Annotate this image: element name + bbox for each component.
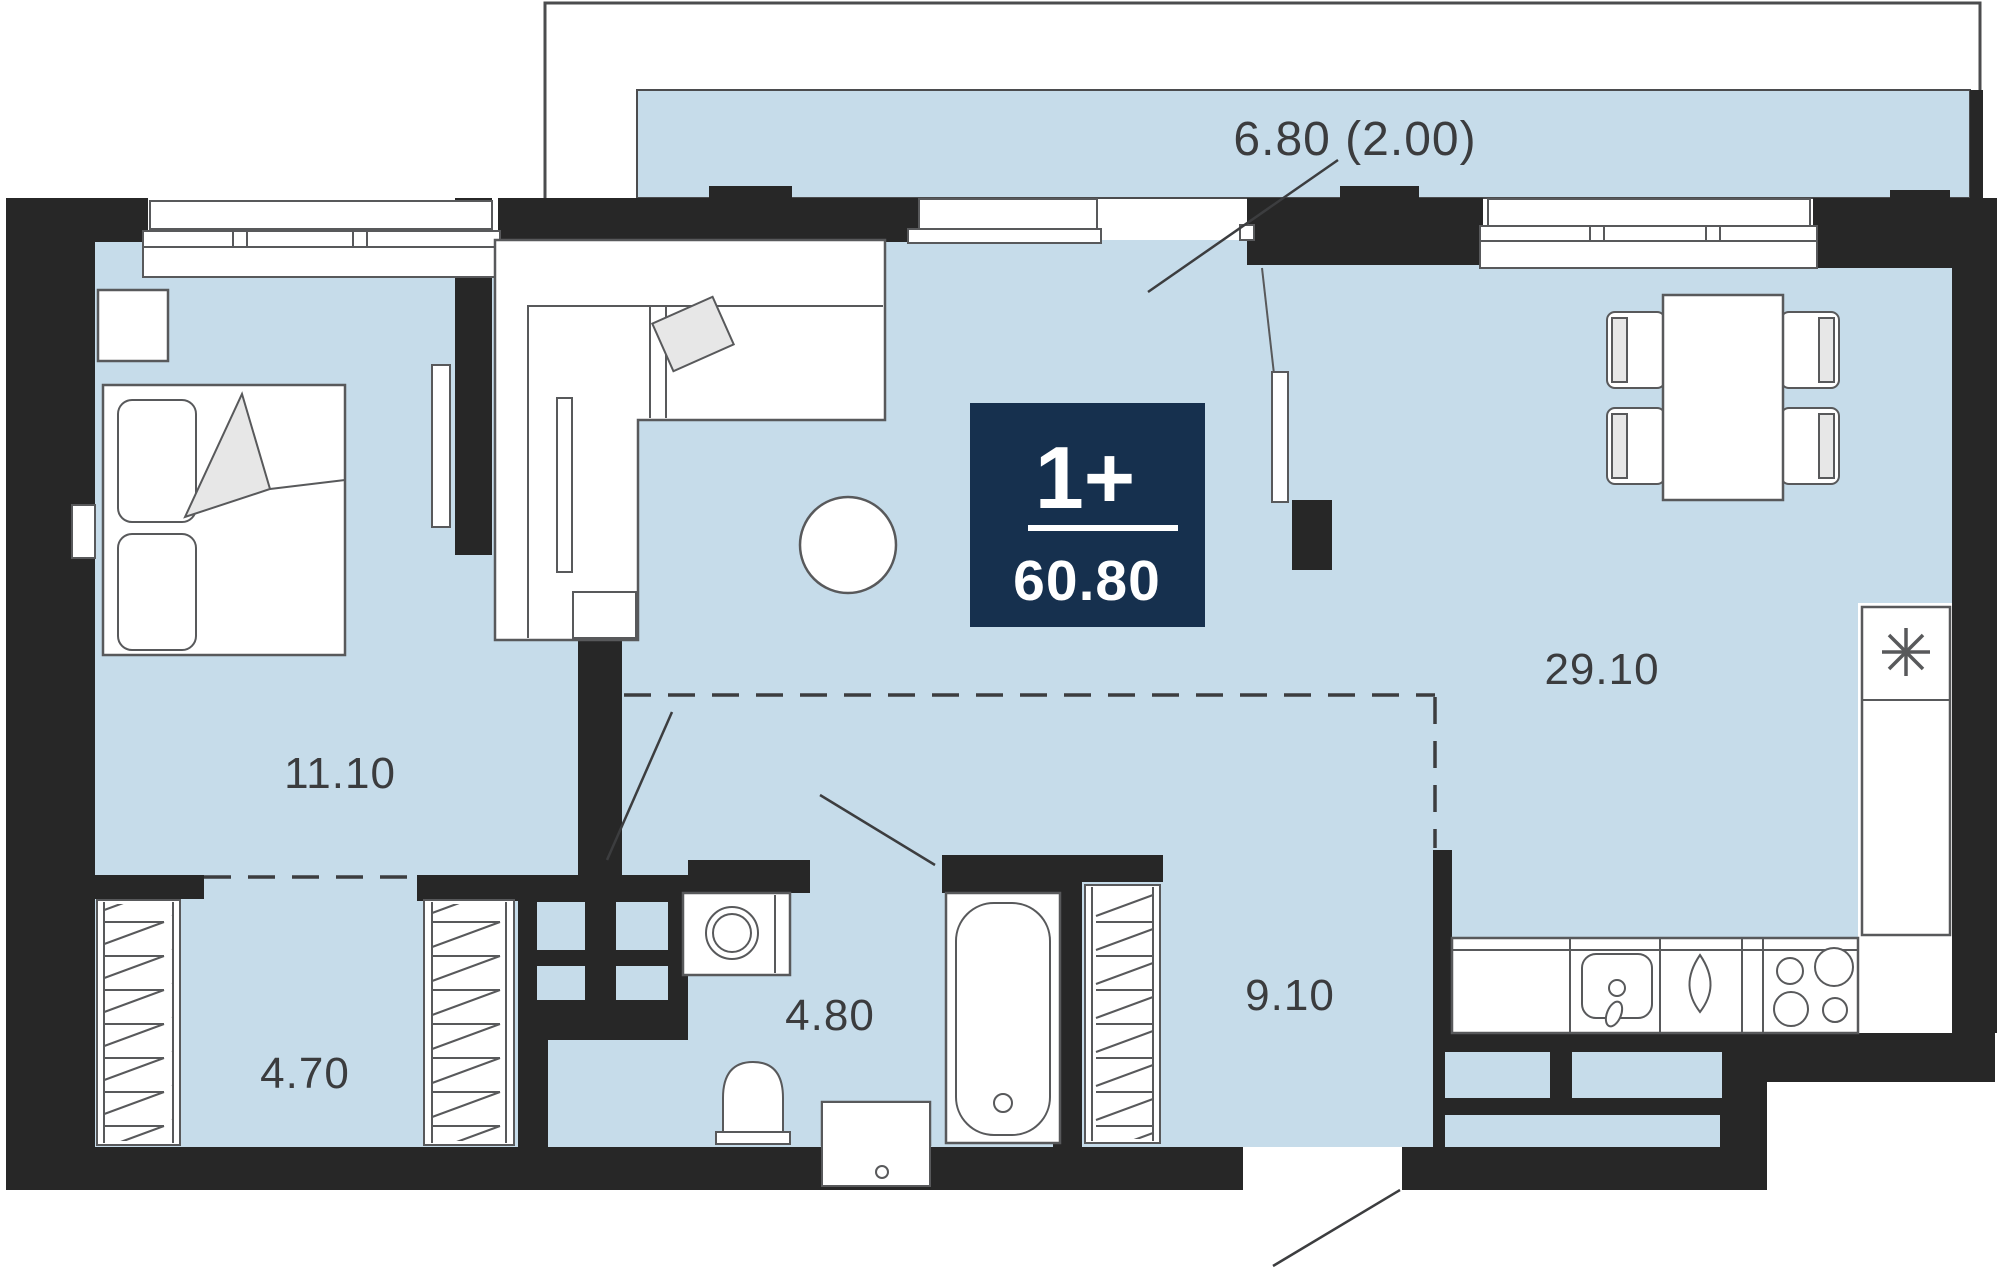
wall-left	[6, 198, 95, 1190]
shaft-vent-1	[537, 902, 585, 950]
wall-kitchen-stub	[1433, 850, 1452, 1035]
bathtub-icon	[946, 893, 1060, 1143]
wall-pier-living	[1292, 500, 1332, 570]
room-label-bedroom: 11.10	[284, 749, 396, 798]
wardrobe-icon	[1085, 885, 1160, 1143]
chair-icon	[1781, 312, 1839, 388]
wall-bathroom-top-right	[942, 855, 1082, 893]
room-label-hallway: 9.10	[1245, 971, 1335, 1020]
wall-top-b	[1247, 198, 1483, 265]
chair-icon	[1607, 408, 1665, 484]
vent-slot-1	[1445, 1052, 1550, 1098]
shaft-vent-4	[616, 966, 668, 1000]
leader-entrance	[1273, 1190, 1400, 1266]
living-window-icon	[908, 199, 1101, 243]
pillow-icon	[118, 534, 196, 650]
vent-slot-3	[1445, 1115, 1720, 1147]
wardrobe-icon	[424, 900, 514, 1145]
badge-rooms-count: 1+	[1035, 428, 1135, 527]
bedroom-door-leaf-icon	[432, 365, 450, 527]
toilet-icon	[716, 1062, 790, 1144]
wall-top-left-corner	[6, 198, 148, 242]
kitchen-sink-icon	[1582, 954, 1652, 1029]
wall-wardrobe-stub-left	[95, 875, 204, 899]
room-label-living: 29.10	[1544, 645, 1659, 694]
bedroom-window-icon	[143, 201, 500, 277]
room-label-balcony: 6.80 (2.00)	[1233, 113, 1476, 166]
vent-slot-2	[1572, 1052, 1722, 1098]
floor-plan-svg: 6.80 (2.00) 11.10 29.10 4.70 4.80 9.10 1…	[0, 0, 2000, 1268]
wall-below-shaft	[518, 1040, 548, 1147]
washing-machine-icon	[683, 893, 790, 975]
wall-right	[1952, 268, 1997, 1033]
nightstand-icon	[98, 290, 168, 361]
wall-top-right-corner	[1813, 198, 1997, 268]
wall-balcony-pier-1	[709, 186, 792, 200]
dining-window-icon	[1480, 199, 1817, 268]
wardrobe-icon	[97, 900, 180, 1145]
bathroom-sink-icon	[822, 1102, 930, 1186]
pillow-icon	[118, 400, 196, 522]
wall-wardrobe-stub-right	[417, 875, 518, 901]
shaft-vent-3	[537, 966, 585, 1000]
wall-corridor	[578, 640, 622, 880]
badge-total-area: 60.80	[1013, 549, 1161, 613]
wall-niche	[72, 505, 95, 558]
wall-bottom-left	[6, 1147, 1243, 1190]
balcony-end-wall	[1970, 90, 1983, 198]
wall-bathroom-top-left	[688, 860, 810, 893]
shaft-block	[518, 875, 688, 1040]
wall-balcony-pier-3	[1890, 190, 1950, 200]
sofa-armrest	[573, 592, 636, 638]
tv-panel-icon	[557, 398, 572, 572]
round-table-icon	[800, 497, 896, 593]
room-label-wardrobe: 4.70	[260, 1049, 350, 1098]
chair-icon	[1607, 312, 1665, 388]
wall-top-a	[498, 198, 919, 242]
dining-table-icon	[1663, 295, 1783, 500]
shaft-vent-2	[616, 902, 668, 950]
floor-plan-page: 6.80 (2.00) 11.10 29.10 4.70 4.80 9.10 1…	[0, 0, 2000, 1268]
snowflake-icon	[1882, 628, 1930, 676]
room-label-bathroom: 4.80	[785, 991, 875, 1040]
wall-bottom-entry	[1402, 1147, 1767, 1190]
area-badge: 1+ 60.80	[970, 403, 1205, 627]
wall-hall-wardrobe-top	[1082, 855, 1163, 882]
chair-icon	[1781, 408, 1839, 484]
wall-balcony-pier-2	[1340, 186, 1419, 200]
